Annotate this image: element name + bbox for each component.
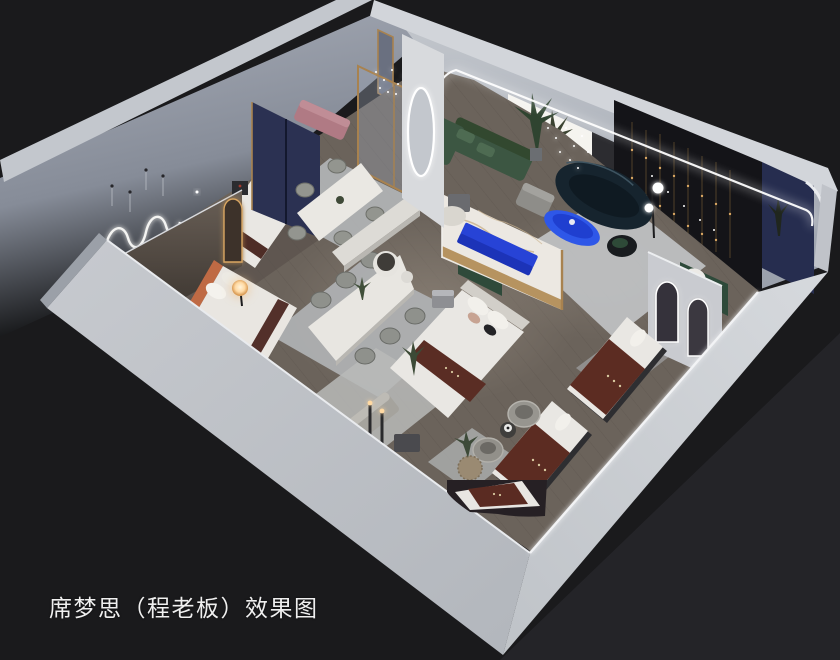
dark-console	[394, 434, 420, 452]
oval-mirror	[402, 34, 444, 228]
arched-mirror-2	[688, 299, 708, 356]
caption-text: 席梦思（程老板）效果图	[49, 589, 319, 623]
wall-spotlight	[196, 191, 199, 194]
glowing-orb-lamp	[232, 280, 248, 296]
render-scene	[0, 0, 840, 660]
showroom-render: 席梦思（程老板）效果图	[0, 0, 840, 660]
round-side-table	[500, 422, 516, 438]
arched-mirror-1	[656, 282, 678, 342]
arched-mirror-warm	[224, 199, 242, 262]
table-vase	[569, 219, 575, 225]
